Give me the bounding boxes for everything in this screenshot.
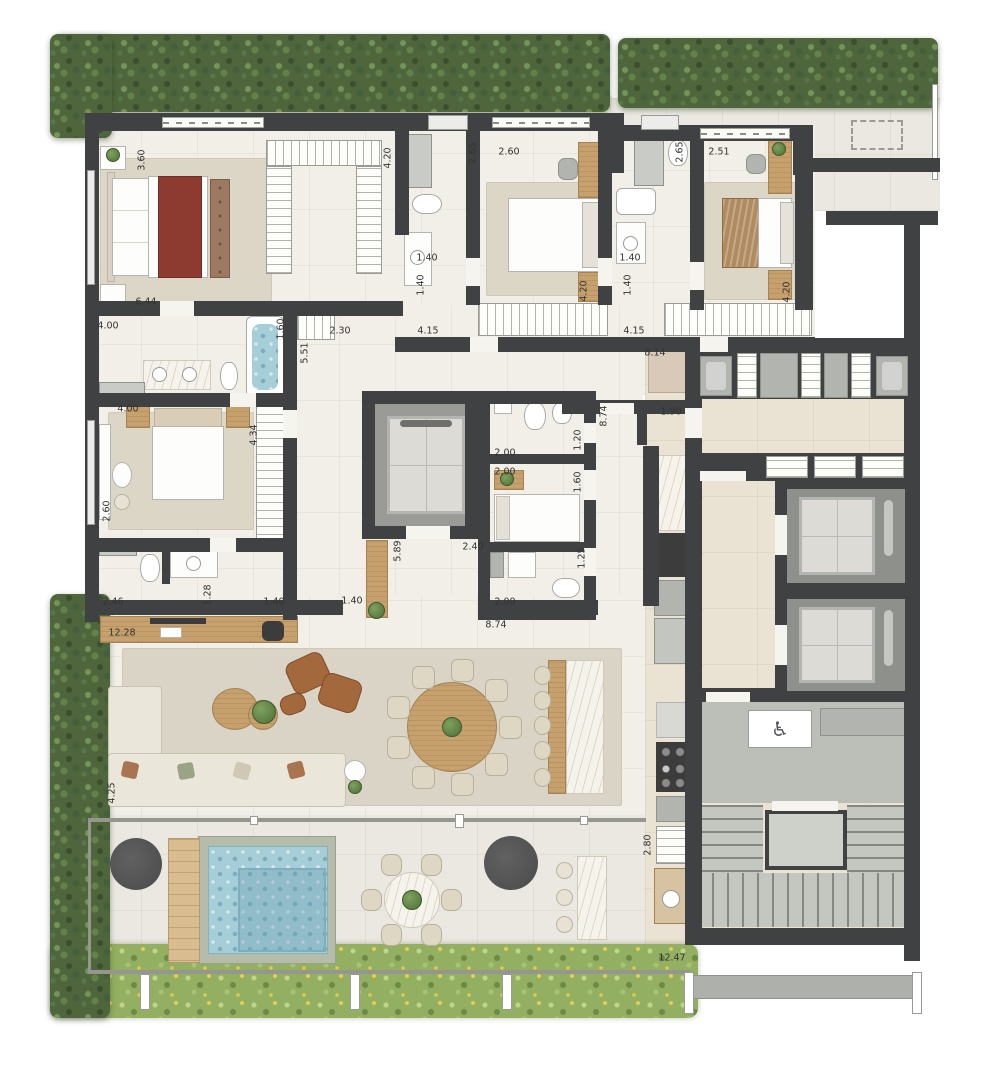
dimension-label: 6.44 <box>135 297 156 307</box>
dimension-label: 2.40 <box>462 542 483 552</box>
dimension-label: 2.46 <box>102 597 123 607</box>
dimension-label: 1.20 <box>573 429 583 450</box>
dimension-label: 5.51 <box>300 342 310 363</box>
dimension-label: 1.40 <box>623 274 633 295</box>
dimension-label: 8.74 <box>599 405 609 426</box>
dimension-label: 1.40 <box>619 253 640 263</box>
dimension-label: 1.40 <box>263 597 284 607</box>
dimension-label: 4.15 <box>417 326 438 336</box>
dimension-label: 2.80 <box>643 834 653 855</box>
dimension-label: 5.89 <box>393 540 403 561</box>
dimension-label: 2.00 <box>494 448 515 458</box>
dimension-label: 8.14 <box>644 348 665 358</box>
dimension-label: 4.00 <box>117 404 138 414</box>
dimension-label: 4.20 <box>579 280 589 301</box>
dimension-label: 12.47 <box>658 953 685 963</box>
dimension-label: 1.60 <box>573 471 583 492</box>
dimension-label: 2.60 <box>102 500 112 521</box>
dimension-labels-layer: 3.606.444.202.652.601.401.404.152.651.40… <box>0 0 996 1080</box>
dimension-label: 4.20 <box>383 147 393 168</box>
dimension-label: 2.60 <box>498 147 519 157</box>
dimension-label: 4.15 <box>623 326 644 336</box>
dimension-label: 2.65 <box>468 142 478 163</box>
dimension-label: 1.25 <box>577 547 587 568</box>
dimension-label: 8.74 <box>485 620 506 630</box>
dimension-label: 1.28 <box>203 584 213 605</box>
dimension-label: 2.30 <box>329 326 350 336</box>
dimension-label: 1.40 <box>341 596 362 606</box>
dimension-label: 4.34 <box>249 424 259 445</box>
dimension-label: 4.20 <box>782 281 792 302</box>
dimension-label: 4.00 <box>97 321 118 331</box>
dimension-label: 1.60 <box>276 318 286 339</box>
dimension-label: 4.25 <box>107 782 117 803</box>
dimension-label: 1.40 <box>416 274 426 295</box>
dimension-label: 2.65 <box>675 141 685 162</box>
dimension-label: 3.60 <box>137 149 147 170</box>
dimension-label: 2.00 <box>494 597 515 607</box>
dimension-label: 1.90 <box>660 407 681 417</box>
dimension-label: 2.00 <box>494 467 515 477</box>
dimension-label: 12.28 <box>108 628 135 638</box>
dimension-label: 2.51 <box>708 147 729 157</box>
dimension-label: 1.40 <box>416 253 437 263</box>
floor-plan: ♿ <box>0 0 996 1080</box>
